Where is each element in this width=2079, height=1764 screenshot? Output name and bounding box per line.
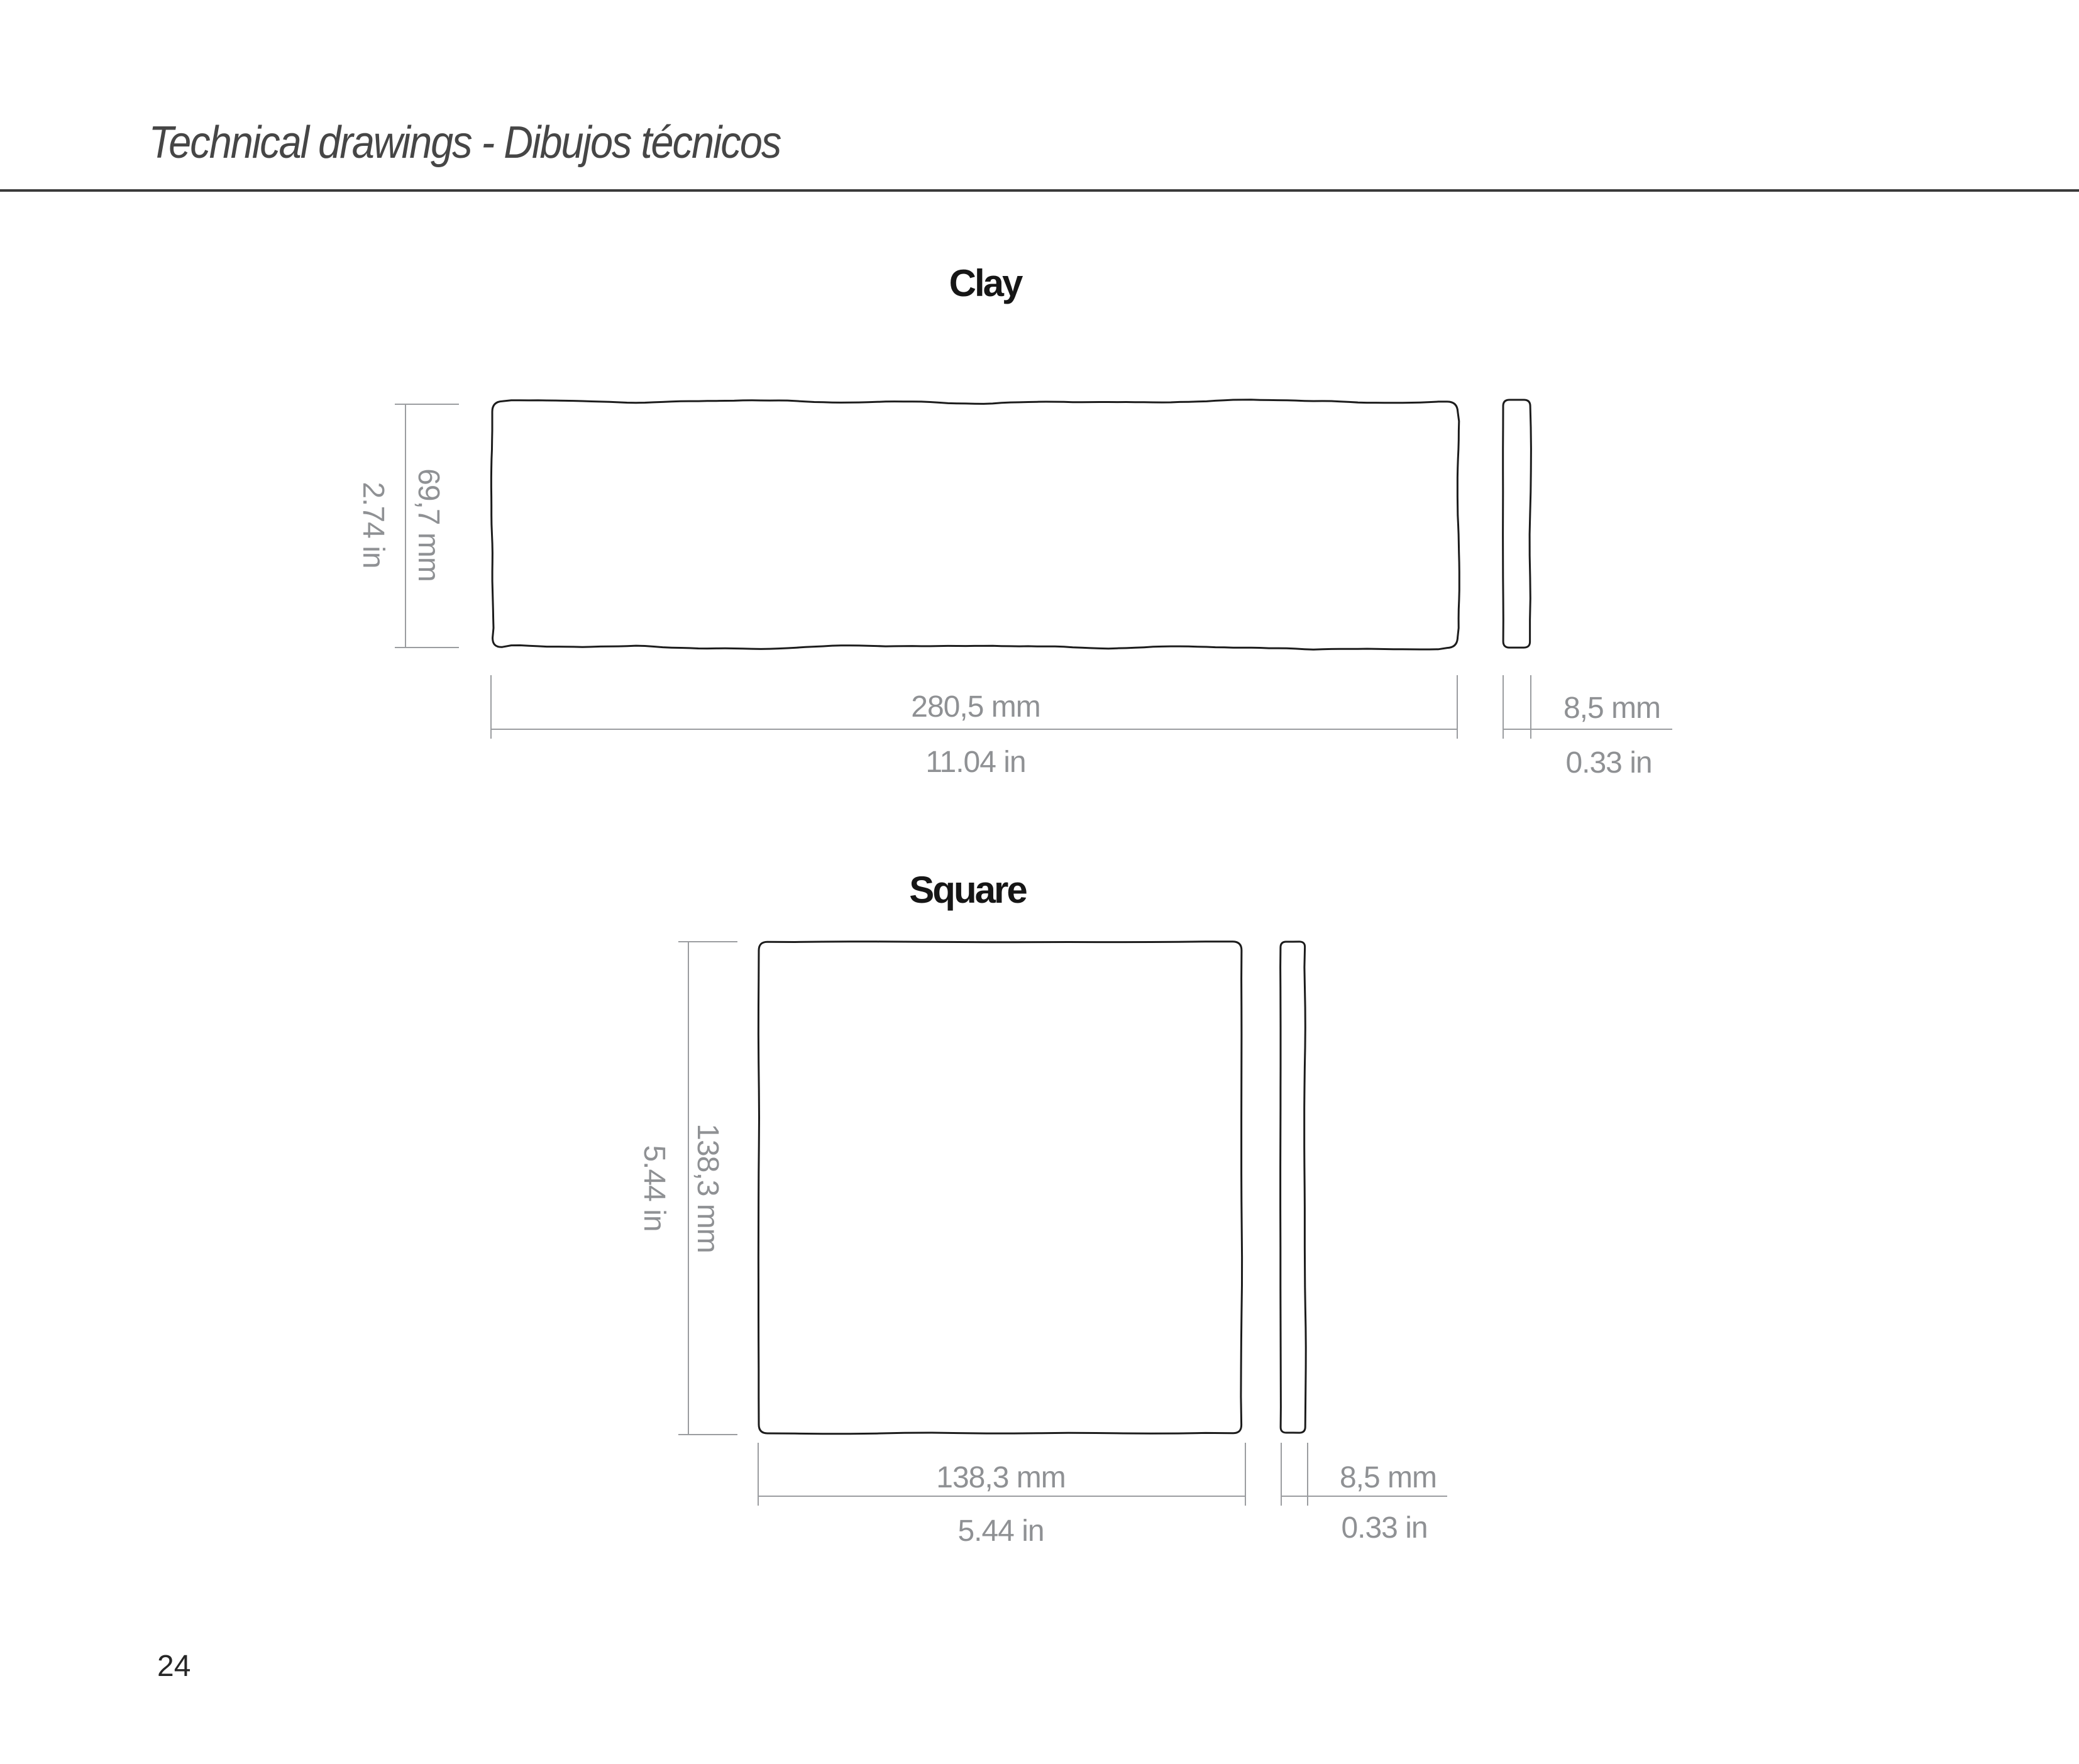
svg-text:0.33 in: 0.33 in (1341, 1511, 1427, 1545)
svg-text:138,3 mm: 138,3 mm (691, 1123, 724, 1252)
svg-text:24: 24 (157, 1650, 190, 1683)
svg-text:Square: Square (909, 869, 1027, 911)
svg-text:138,3 mm: 138,3 mm (936, 1461, 1065, 1494)
svg-text:5.44 in: 5.44 in (957, 1514, 1044, 1548)
svg-text:Technical drawings - Dibujos t: Technical drawings - Dibujos técnicos (149, 117, 781, 168)
svg-text:11.04 in: 11.04 in (925, 746, 1025, 779)
svg-text:Clay: Clay (949, 262, 1023, 304)
svg-text:5.44 in: 5.44 in (637, 1145, 671, 1231)
svg-text:0.33 in: 0.33 in (1565, 746, 1652, 780)
svg-text:8,5 mm: 8,5 mm (1340, 1461, 1437, 1494)
svg-text:2.74 in: 2.74 in (356, 482, 390, 568)
svg-text:8,5 mm: 8,5 mm (1563, 692, 1660, 725)
svg-text:280,5 mm: 280,5 mm (911, 690, 1040, 724)
svg-text:69,7 mm: 69,7 mm (412, 468, 445, 582)
